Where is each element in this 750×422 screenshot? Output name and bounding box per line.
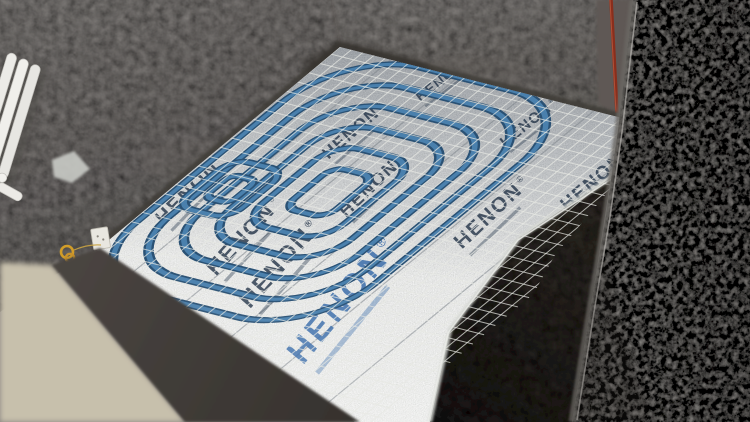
- electrical-box: [91, 227, 111, 250]
- photo-underfloor-heating-room: HENON®HENON®HENON®HENON®HENON®HENON®HENO…: [0, 0, 750, 422]
- scene-canvas: HENON®HENON®HENON®HENON®HENON®HENON®HENO…: [0, 0, 750, 422]
